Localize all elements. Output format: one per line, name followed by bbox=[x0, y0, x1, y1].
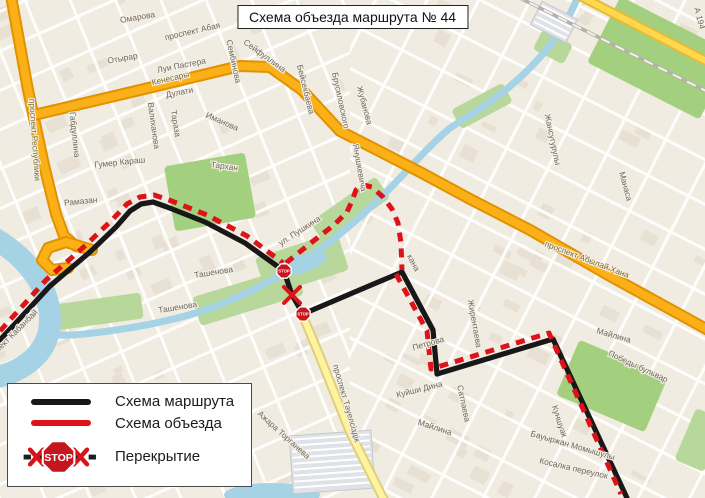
legend-item-closure: STOP Перекрытие bbox=[22, 437, 251, 477]
detour-line-icon bbox=[31, 420, 91, 426]
svg-text:STOP: STOP bbox=[44, 452, 73, 464]
closure-icon: STOP bbox=[22, 437, 100, 477]
legend: Схема маршрута Схема объезда STOP bbox=[7, 383, 252, 487]
legend-closure-label: Перекрытие bbox=[115, 448, 200, 465]
legend-route-label: Схема маршрута bbox=[115, 393, 234, 410]
stop-sign-icon: STOP bbox=[22, 437, 100, 477]
stop-sign: STOP bbox=[295, 306, 311, 322]
svg-text:STOP: STOP bbox=[297, 312, 309, 317]
map-title: Схема объезда маршрута № 44 bbox=[237, 5, 468, 29]
detour-line-swatch bbox=[22, 420, 100, 426]
route-line-swatch bbox=[22, 399, 100, 405]
legend-detour-label: Схема объезда bbox=[115, 415, 222, 432]
map-viewport: STOPSTOPОмаровапроспект АбаяОтырарЛуи Па… bbox=[0, 0, 705, 498]
stop-sign: STOP bbox=[276, 263, 292, 279]
svg-text:STOP: STOP bbox=[278, 269, 290, 274]
legend-item-route: Схема маршрута bbox=[22, 393, 251, 410]
legend-item-detour: Схема объезда bbox=[22, 415, 251, 432]
route-line-icon bbox=[31, 399, 91, 405]
